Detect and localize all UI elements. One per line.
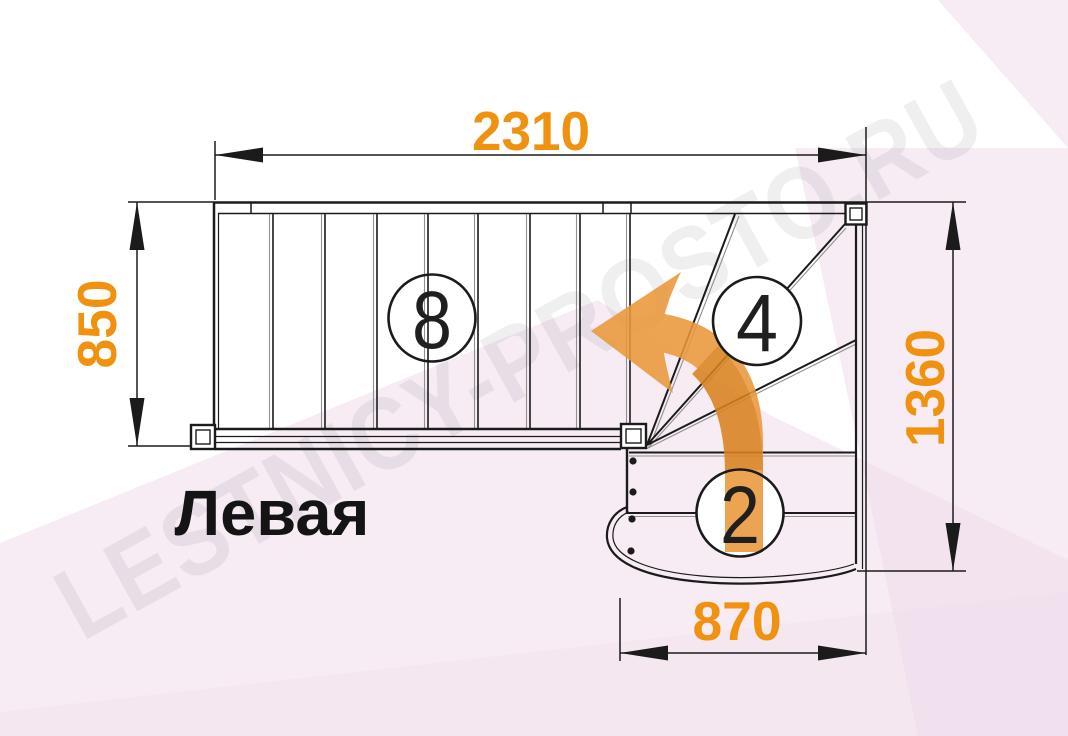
post-bottom-left	[191, 425, 215, 449]
stair-plan-drawing: LESTNICY-PROSTO.RU	[0, 0, 1068, 736]
dimension-label-2310: 2310	[472, 100, 590, 162]
dimension-label-850: 850	[66, 280, 128, 369]
dimension-label-870: 870	[693, 590, 782, 652]
badge-4-label: 4	[736, 278, 778, 369]
badge-8-label: 8	[412, 275, 452, 366]
variant-label: Левая	[175, 477, 370, 549]
dimension-label-1360: 1360	[894, 329, 956, 447]
badge-2-label: 2	[720, 470, 760, 561]
post-top-right	[846, 204, 867, 225]
post-center	[621, 424, 646, 448]
